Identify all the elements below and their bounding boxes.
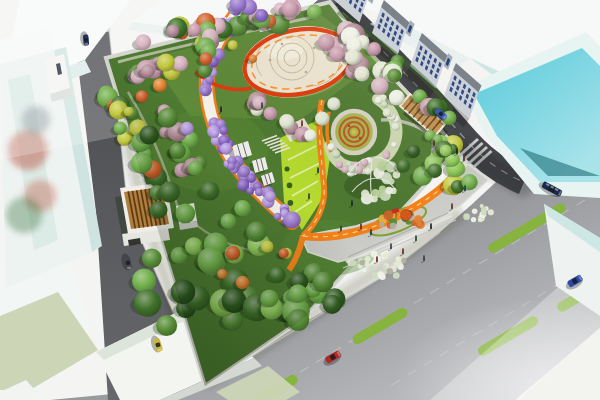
tree (461, 174, 477, 190)
scene-canvas (0, 0, 600, 400)
plant (383, 252, 389, 258)
island-shrub-sculpture (401, 210, 412, 221)
park-aerial-rendering (0, 0, 600, 400)
tree (156, 315, 177, 336)
tree (132, 269, 156, 293)
plant (393, 272, 400, 279)
plant (383, 265, 387, 269)
plant (488, 209, 494, 215)
tree (166, 25, 179, 38)
plant (360, 260, 365, 265)
tree (188, 23, 201, 36)
plant (481, 210, 487, 216)
tree (134, 289, 161, 316)
tree (323, 295, 342, 314)
plant (463, 213, 470, 220)
plant (365, 256, 371, 262)
plant (471, 217, 476, 222)
tree (114, 122, 127, 135)
plant (390, 223, 397, 230)
plant (364, 262, 369, 267)
plant (478, 218, 483, 223)
plant (472, 208, 478, 214)
plant (362, 268, 366, 272)
tree (142, 249, 162, 269)
plant (369, 265, 375, 271)
plant (401, 258, 406, 263)
plant (386, 268, 393, 275)
plant (417, 222, 422, 227)
plant (377, 271, 384, 278)
